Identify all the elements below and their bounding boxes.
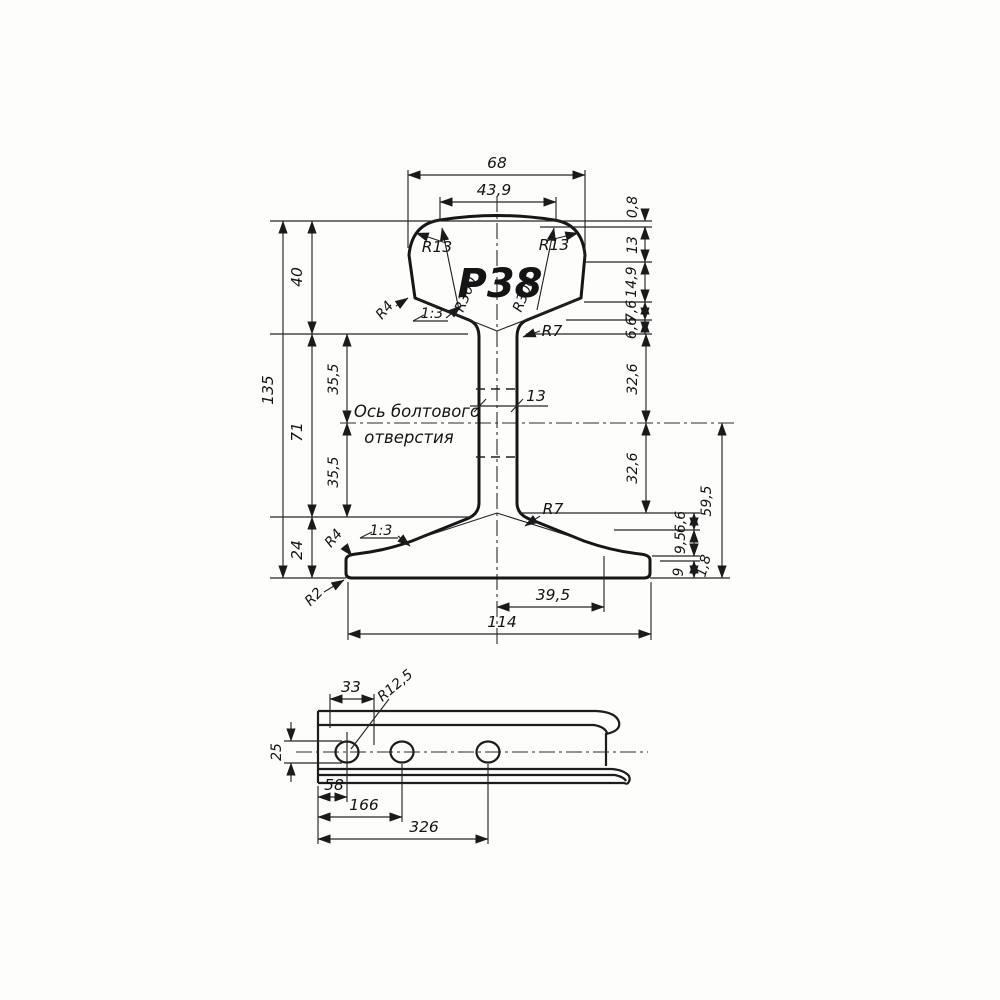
dim-chain-right-head: 0,8 13 14,9 7,6 6,6 32,6 32,6 [624, 196, 646, 513]
side-view-outline [318, 711, 630, 784]
r4-head-label: R4 [373, 298, 397, 323]
dim-135-label: 135 [259, 375, 277, 405]
dim-326-lower-label: 32,6 [625, 452, 641, 483]
dim-hole-spacings: 58 166 326 [318, 732, 488, 844]
dim-head-66-label: 6,6 [624, 317, 640, 339]
dim-355-lower-label: 35,5 [326, 456, 342, 487]
bolt-axis-note-line2: отверстия [364, 428, 453, 447]
rail-drawing-svg: 68 43,9 0,8 13 14,9 7,6 6,6 32,6 32,6 [0, 0, 1000, 1000]
dim-foot-18-label: 1,8 [694, 553, 715, 579]
profile-name-label: Р38 [458, 261, 543, 307]
drawing-sheet: 68 43,9 0,8 13 14,9 7,6 6,6 32,6 32,6 [0, 0, 1000, 1000]
cross-section-view: 68 43,9 0,8 13 14,9 7,6 6,6 32,6 32,6 [259, 154, 736, 646]
dim-foot-9-label: 9 [671, 567, 687, 576]
dim-web-thickness: 13 [470, 387, 548, 412]
dim-head-width-label: 68 [487, 154, 507, 172]
dim-foot-66-label: 6,6 [673, 511, 689, 533]
side-view: R12,5 33 25 58 166 326 [269, 667, 648, 844]
r7-web-top-label: R7 [542, 322, 563, 340]
dim-foot-widths: 39,5 114 [348, 556, 651, 640]
dim-head-149-label: 14,9 [624, 266, 640, 297]
dim-595-label: 59,5 [699, 485, 715, 516]
dim-58-label: 58 [324, 776, 344, 794]
dim-24-label: 24 [288, 540, 306, 560]
dim-chain-right-foot: 6,6 9,5 1,8 9 59,5 [671, 423, 722, 579]
r2-foot-label: R2 [302, 585, 327, 610]
dim-chain-left: 135 40 71 24 35,5 35,5 [259, 221, 347, 578]
r13-right-label: R13 [539, 236, 570, 254]
dim-326-label: 326 [409, 818, 439, 836]
dim-326-upper-label: 32,6 [625, 363, 641, 394]
dim-71-label: 71 [288, 422, 306, 442]
dim-25-label: 25 [269, 743, 285, 761]
dim-head-13-label: 13 [625, 236, 641, 254]
r125-label: R12,5 [375, 667, 417, 706]
dim-33-label: 33 [341, 678, 361, 696]
dim-114-label: 114 [487, 613, 517, 631]
bolt-axis-note-line1: Ось болтового [354, 402, 480, 421]
dim-web-13-label: 13 [526, 387, 546, 405]
dim-40-label: 40 [288, 267, 306, 287]
dim-crown-width-label: 43,9 [477, 181, 512, 199]
dim-crown-rise-label: 0,8 [625, 196, 641, 218]
dim-395-label: 39,5 [536, 586, 571, 604]
r7-web-bottom-label: R7 [543, 500, 564, 518]
dim-foot-95-label: 9,5 [673, 532, 689, 554]
dim-166-label: 166 [349, 796, 379, 814]
bolt-axis-note: Ось болтового отверстия [354, 402, 480, 447]
slope-callouts: 1:3 1:3 [360, 306, 461, 546]
dim-355-upper-label: 35,5 [326, 363, 342, 394]
r4-foot-label: R4 [322, 526, 346, 551]
slope-foot-label: 1:3 [370, 523, 393, 539]
slope-head-label: 1:3 [421, 306, 444, 322]
